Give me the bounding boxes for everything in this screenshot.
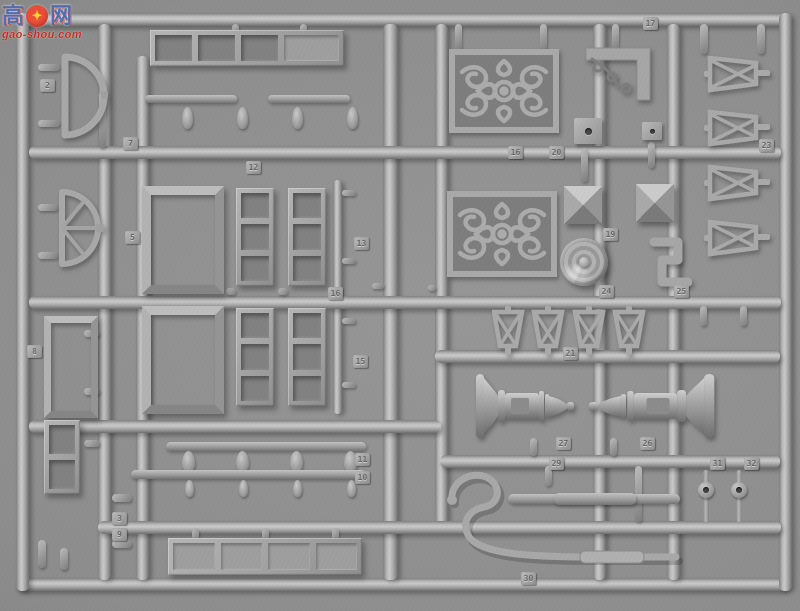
window-sash-part bbox=[288, 188, 326, 286]
two-pane-frame-part bbox=[44, 420, 80, 494]
sprue-stub bbox=[342, 190, 356, 196]
sprue-stub bbox=[278, 288, 288, 295]
sprue-stub bbox=[38, 540, 46, 568]
part-number-tag: 11 bbox=[355, 453, 370, 466]
sprue-stub bbox=[342, 258, 356, 264]
sprue-stub bbox=[757, 24, 765, 54]
fanlight-arch-part bbox=[58, 52, 108, 140]
lintel-strip-part bbox=[268, 95, 350, 103]
part-number-tag: 13 bbox=[354, 237, 369, 250]
pierced-plate-part bbox=[642, 122, 662, 140]
sash-pane bbox=[241, 344, 269, 369]
panel-opening bbox=[241, 35, 278, 61]
narrow-frame-part bbox=[44, 316, 98, 418]
sash-pane bbox=[49, 425, 75, 454]
spindle-pin bbox=[237, 107, 248, 129]
sprue-stub bbox=[112, 494, 132, 502]
pierced-plate-part bbox=[574, 118, 602, 144]
sash-pane bbox=[293, 224, 321, 249]
sprue-stub bbox=[581, 148, 588, 182]
sprue-stub bbox=[342, 382, 356, 388]
plank-recess bbox=[316, 543, 358, 570]
sprue-stub bbox=[700, 24, 708, 54]
sprue-stub bbox=[226, 288, 236, 295]
turned-baluster-pair bbox=[470, 368, 728, 446]
part-number-tag: 12 bbox=[246, 161, 261, 174]
sprue-stub bbox=[38, 204, 58, 211]
sprue-stub bbox=[38, 252, 58, 259]
watermark-char-left: 高 bbox=[2, 4, 24, 28]
sash-pane bbox=[293, 193, 321, 218]
door-frame-part bbox=[142, 186, 224, 294]
sash-pane bbox=[293, 313, 321, 338]
watermark-char-right: 网 bbox=[50, 4, 72, 28]
railing-pin bbox=[347, 480, 356, 497]
round-head-pin-part bbox=[730, 470, 748, 522]
sprue-stub bbox=[84, 440, 100, 447]
lintel-strip-part bbox=[145, 95, 237, 103]
sprue-stub bbox=[700, 306, 707, 326]
plank-recess bbox=[268, 543, 310, 570]
paneled-plank-part bbox=[168, 538, 362, 575]
sprue-photo: 高 ✦ 网 gao-shou.com bbox=[0, 0, 800, 611]
lattice-panel-small bbox=[446, 190, 558, 278]
plate-hole bbox=[650, 129, 655, 134]
spoked-fan-window-part bbox=[56, 188, 104, 268]
sash-pane bbox=[293, 256, 321, 281]
plate-hole bbox=[585, 128, 592, 135]
panel-recess bbox=[284, 35, 339, 61]
round-head-pin-part bbox=[697, 470, 715, 522]
part-number-tag: 8 bbox=[27, 345, 42, 358]
sash-pane bbox=[241, 193, 269, 218]
sprue-stub bbox=[740, 306, 747, 326]
pin-hole bbox=[736, 487, 742, 493]
sash-pane bbox=[241, 313, 269, 338]
plank-recess bbox=[173, 543, 215, 570]
panel-opening bbox=[155, 35, 192, 61]
sprue-stub bbox=[38, 64, 60, 71]
sash-pane bbox=[241, 376, 269, 401]
railing-pin bbox=[293, 480, 302, 497]
sash-pane bbox=[241, 224, 269, 249]
part-number-tag: 15 bbox=[353, 355, 368, 368]
railing-bottom-rail bbox=[131, 470, 366, 479]
sash-pane bbox=[293, 344, 321, 369]
sprue-runner-left bbox=[16, 13, 29, 591]
watermark: 高 ✦ 网 gao-shou.com bbox=[2, 4, 82, 41]
swan-neck-hook-part bbox=[428, 460, 690, 574]
disc-part bbox=[560, 238, 608, 286]
panel-opening bbox=[198, 35, 235, 61]
railing-pin bbox=[185, 480, 194, 497]
sash-pane bbox=[49, 460, 75, 489]
corner-bracket-part bbox=[584, 46, 652, 102]
trapezoid-stand-row bbox=[492, 306, 652, 356]
shutter-panel-part bbox=[150, 30, 344, 66]
railing-spindle bbox=[236, 451, 249, 472]
sprue-runner bbox=[29, 146, 781, 159]
window-sash-part bbox=[236, 308, 274, 406]
sprue-stub bbox=[342, 318, 356, 324]
spindle-pin bbox=[347, 107, 358, 129]
gear-logo-icon: ✦ bbox=[26, 5, 48, 27]
tube-bracket-part bbox=[646, 236, 692, 290]
railing-top-rail bbox=[166, 442, 366, 451]
pyramid-cap-part bbox=[564, 186, 602, 224]
sprue-stub bbox=[112, 540, 132, 548]
sprue-stub bbox=[38, 120, 60, 127]
railing-spindle bbox=[344, 451, 357, 472]
window-sash-part bbox=[288, 308, 326, 406]
sprue-stub bbox=[648, 142, 655, 168]
spindle-pin bbox=[292, 107, 303, 129]
plank-recess bbox=[221, 543, 263, 570]
sash-pane bbox=[241, 256, 269, 281]
spindle-pin bbox=[182, 107, 193, 129]
watermark-url: gao-shou.com bbox=[2, 29, 82, 41]
sprue-stub bbox=[60, 548, 68, 570]
sash-pane bbox=[293, 376, 321, 401]
disc-hub bbox=[579, 257, 589, 267]
sprue-stub bbox=[428, 285, 436, 291]
pin-hole bbox=[703, 487, 709, 493]
door-frame-part bbox=[142, 306, 224, 414]
sprue-stub bbox=[372, 283, 384, 289]
part-number-tag: 2 bbox=[40, 79, 55, 92]
sprue-stub bbox=[540, 24, 547, 50]
lattice-panel-large bbox=[448, 48, 560, 134]
railing-spindle bbox=[290, 451, 303, 472]
cross-braced-frame-column bbox=[704, 56, 776, 268]
window-sash-part bbox=[236, 188, 274, 286]
sprue-runner bbox=[29, 420, 441, 433]
sprue-stub bbox=[455, 24, 462, 50]
pyramid-cap-part bbox=[636, 184, 674, 222]
railing-spindle bbox=[182, 451, 195, 472]
railing-pin bbox=[239, 480, 248, 497]
